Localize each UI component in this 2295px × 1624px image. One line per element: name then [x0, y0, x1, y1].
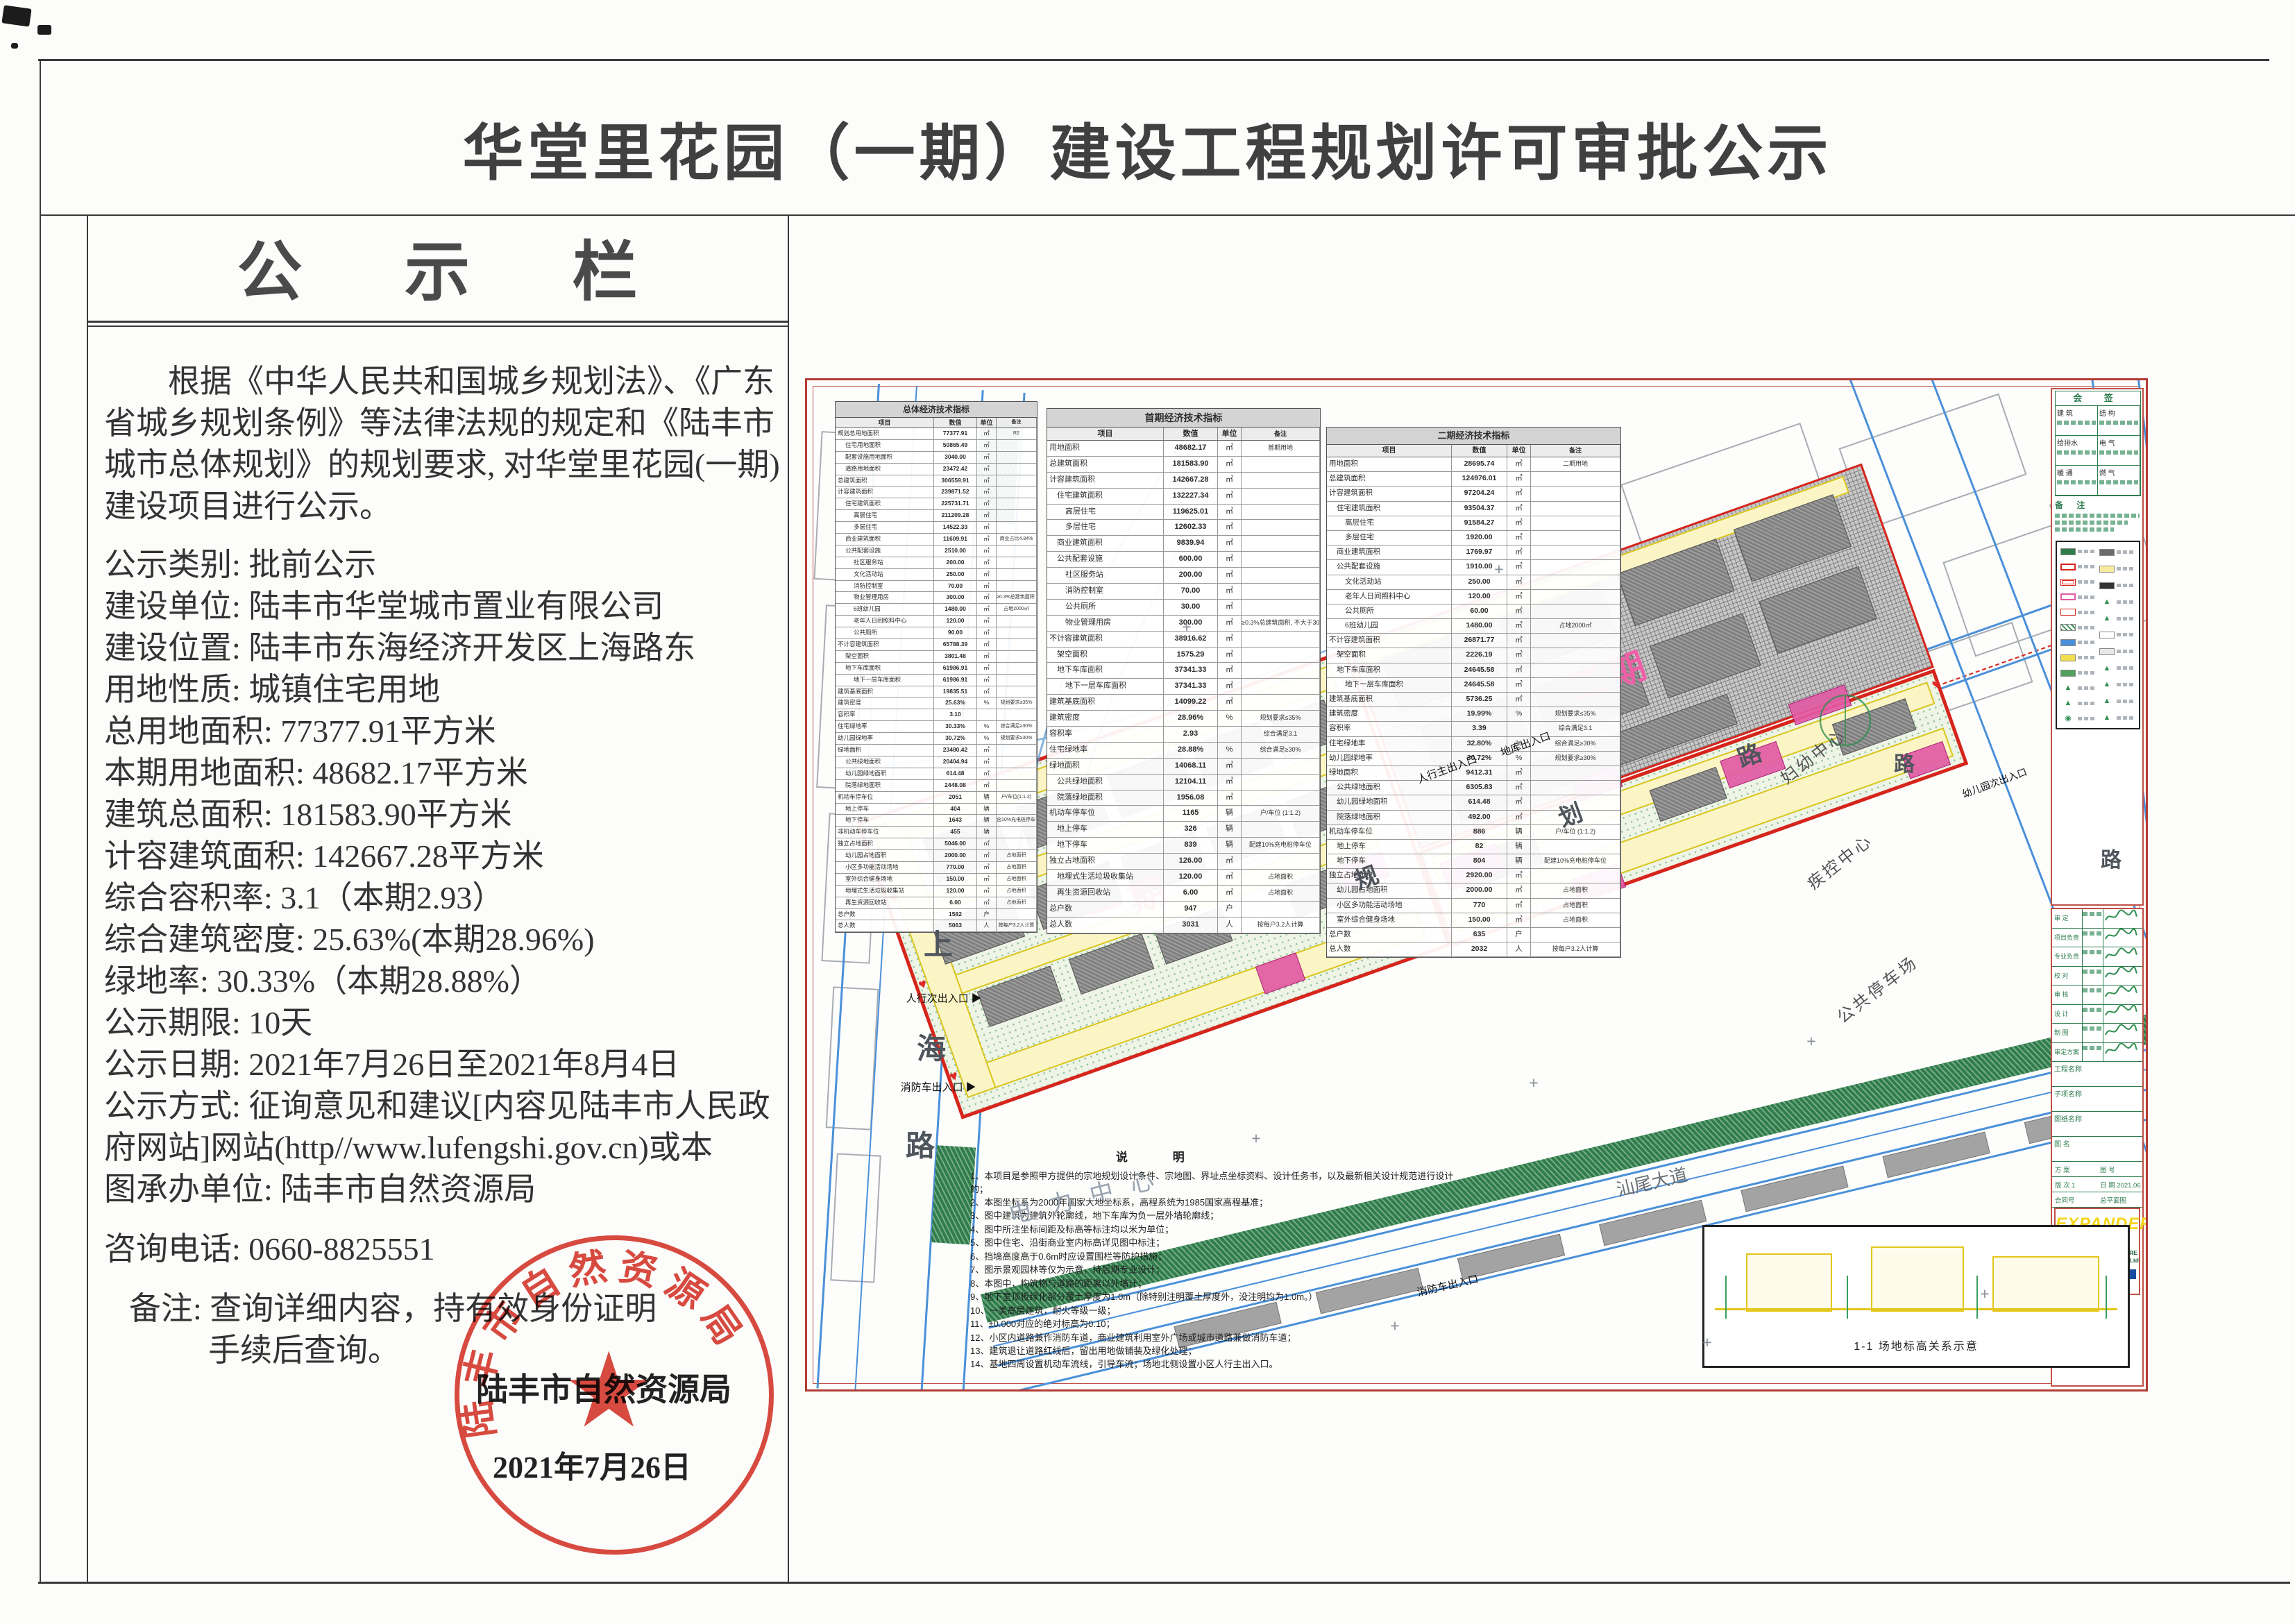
legend-label	[2117, 700, 2135, 703]
legend-item	[2060, 548, 2097, 555]
row-label: 高层住宅	[1327, 516, 1452, 530]
legend-label	[2078, 686, 2097, 690]
column-header: 项目	[836, 418, 934, 428]
row-label: 建筑密度	[1047, 711, 1164, 726]
table-row: 建筑密度28.96%%规划要求≤35%	[1047, 711, 1320, 727]
map-label: 路	[1894, 747, 1915, 777]
row-label: 社区服务站	[1047, 568, 1164, 583]
map-label: +	[1806, 1033, 1816, 1052]
signature-role: 审定方案	[2052, 1043, 2083, 1062]
row-unit: ㎡	[977, 862, 997, 873]
row-unit: ㎡	[1218, 441, 1242, 456]
section-caption: 1-1 场地标高关系示意	[1704, 1337, 2128, 1353]
row-note	[997, 838, 1037, 849]
column-header: 备注	[1242, 428, 1320, 440]
legend-label	[2078, 717, 2097, 720]
row-unit: ㎡	[1507, 678, 1531, 692]
notice-line: 建设项目进行公示。	[104, 486, 791, 527]
row-note	[1531, 928, 1620, 942]
row-note	[1531, 634, 1620, 648]
row-note	[1242, 505, 1320, 520]
row-note	[1242, 600, 1320, 615]
note-line: 8、本图中，构筑物与道路的距离以外墙计；	[970, 1278, 1456, 1290]
row-value: 1582	[934, 909, 977, 920]
row-note	[1531, 545, 1620, 559]
note-line: 6、挡墙高度高于0.6m时应设置围栏等防护措施；	[970, 1251, 1456, 1263]
table-row: 幼儿园绿地面积614.48㎡	[836, 768, 1037, 780]
table-row: 地下一层车库面积24645.58㎡	[1327, 678, 1620, 693]
row-label: 地上停车	[836, 804, 934, 815]
svg-text:陆丰市自然资源局: 陆丰市自然资源局	[456, 1246, 749, 1441]
section-tick	[1725, 1276, 1727, 1319]
legend-triangle-icon: ▲	[2099, 714, 2115, 721]
noise	[2083, 988, 2103, 992]
map-label: 海	[917, 1026, 946, 1068]
row-label: 室外综合健身场地	[836, 874, 934, 885]
legend-label	[2078, 550, 2097, 553]
row-label: 地埋式生活垃圾收集站	[1047, 870, 1164, 885]
table-row: 建筑密度19.99%%规划要求≤35%	[1327, 707, 1620, 722]
row-unit: ㎡	[977, 534, 997, 545]
row-unit: ㎡	[1218, 886, 1242, 901]
row-label: 住宅绿地率	[1047, 743, 1164, 758]
table-row: 6班幼儿园1480.00㎡占地2000㎡	[1327, 619, 1620, 634]
notice-line: 公示类别: 批前公示	[104, 544, 791, 586]
map-label: 路	[906, 1123, 935, 1165]
row-label: 公共绿地面积	[1047, 775, 1164, 790]
column-header: 数值	[1164, 428, 1218, 440]
row-label: 非机动车停车位	[836, 827, 934, 838]
row-label: 公共厕所	[1327, 604, 1452, 618]
row-value: 3801.48	[934, 651, 977, 662]
legend-label	[2078, 611, 2097, 614]
noise	[2083, 950, 2103, 954]
table-row: 住宅建筑面积225731.71㎡	[836, 498, 1037, 510]
row-unit: ㎡	[1218, 679, 1242, 694]
row-unit: ㎡	[1218, 552, 1242, 567]
legend-item: ▲	[2060, 684, 2097, 691]
row-value: 886	[1452, 825, 1507, 839]
row-note	[1242, 520, 1320, 535]
row-label: 不计容建筑面积	[836, 639, 934, 650]
row-label: 地下停车	[1327, 854, 1452, 868]
row-note: 配建10%充电桩停车位	[1531, 854, 1620, 868]
legend-ring-icon: ◉	[2060, 715, 2076, 722]
row-label: 高层住宅	[836, 510, 934, 521]
row-label: 独立占地面积	[1047, 854, 1164, 869]
note-line: 14、基地四周设置机动车流线，引导车流；场地北侧设置小区人行主出入口。	[970, 1358, 1456, 1371]
row-value: 90.00	[934, 627, 977, 638]
row-note	[997, 464, 1037, 475]
legend-swatch	[2099, 566, 2115, 573]
row-unit: ㎡	[1507, 516, 1531, 530]
table-row: 老年人日间照料中心120.00㎡	[1327, 590, 1620, 604]
row-value: 9839.94	[1164, 536, 1218, 551]
row-note: 商业占比4.84%	[997, 534, 1037, 545]
scan-artifact	[1, 5, 31, 26]
row-note	[1242, 679, 1320, 694]
table-row: 住宅用地面积50865.49㎡	[836, 440, 1037, 452]
note-line: 10、一类高层建筑，耐火等级一级；	[970, 1305, 1456, 1317]
row-unit: ㎡	[1507, 472, 1531, 486]
row-note	[997, 452, 1037, 463]
table-row: 绿地面积14068.11㎡	[1047, 759, 1320, 775]
row-note: 综合满足≥30%	[997, 721, 1037, 732]
row-label: 多层住宅	[1327, 531, 1452, 545]
table-row: 总建筑面积181583.90㎡	[1047, 457, 1320, 473]
meta-row: 版 次 1日 期 2021.06	[2052, 1177, 2142, 1192]
table-row: 高层住宅119625.01㎡	[1047, 505, 1320, 521]
row-note: 规划要求≤35%	[1242, 711, 1320, 726]
row-label: 架空面积	[1327, 648, 1452, 662]
row-unit: ㎡	[977, 452, 997, 463]
meta-cell: 方 案	[2052, 1165, 2097, 1174]
row-unit: ㎡	[1507, 781, 1531, 795]
row-label: 总建筑面积	[1047, 457, 1164, 472]
signature-mid	[2083, 909, 2103, 928]
row-unit: ㎡	[1218, 584, 1242, 599]
row-label: 院落绿地面积	[836, 780, 934, 791]
page-title: 华堂里花园（一期）建设工程规划许可审批公示	[0, 104, 2295, 192]
row-label: 总人数	[1047, 917, 1164, 933]
row-label: 再生资源回收站	[1047, 886, 1164, 901]
map-label: +	[1251, 1131, 1261, 1149]
legend-label	[2078, 595, 2097, 599]
row-value: 11609.91	[934, 534, 977, 545]
table-row: 再生资源回收站6.00㎡占地面积	[836, 897, 1037, 909]
row-unit: %	[1507, 707, 1531, 721]
row-unit: ㎡	[1507, 590, 1531, 604]
legend-label	[2078, 671, 2097, 675]
row-value: 28695.74	[1452, 457, 1507, 471]
row-value: 61986.91	[934, 663, 977, 674]
signature-scribble	[2103, 1004, 2142, 1023]
row-value: 20404.94	[934, 756, 977, 768]
row-value: 60.00	[1452, 604, 1507, 618]
row-value: 1643	[934, 815, 977, 826]
table-row: 用地面积28695.74㎡二期用地	[1327, 457, 1620, 472]
row-label: 商业建筑面积	[1047, 536, 1164, 551]
row-value: 614.48	[934, 768, 977, 779]
row-note	[1531, 516, 1620, 530]
row-note	[1531, 648, 1620, 662]
table-row: 幼儿园占地面积2000.00㎡占地面积	[836, 850, 1037, 862]
row-unit: ㎡	[1507, 457, 1531, 471]
legend-triangle-icon: ▲	[2099, 615, 2115, 622]
row-unit: ㎡	[977, 886, 997, 897]
table-row: 6班幼儿园1480.00㎡占地2000㎡	[836, 604, 1037, 616]
row-value: 19835.51	[934, 686, 977, 697]
row-label: 地埋式生活垃圾收集站	[836, 886, 934, 897]
table-overall-indicators: 总体经济技术指标项目数值单位备注规划总用地面积77377.91㎡R2住宅用地面积…	[835, 401, 1038, 933]
row-value: 250.00	[934, 569, 977, 580]
table-row: 公共绿地面积12104.11㎡	[1047, 775, 1320, 790]
row-label: 多层住宅	[1047, 520, 1164, 535]
table-row: 地上停车82辆	[1327, 840, 1620, 854]
row-note	[1242, 584, 1320, 599]
row-unit: 户	[1218, 902, 1242, 917]
row-value: 300.00	[934, 592, 977, 603]
row-note	[997, 909, 1037, 920]
map-label: +	[1702, 1335, 1712, 1353]
row-value: 200.00	[934, 557, 977, 568]
row-label: 幼儿园占地面积	[1327, 883, 1452, 897]
legend-label	[2117, 683, 2135, 686]
row-note	[997, 616, 1037, 627]
row-note	[1531, 693, 1620, 707]
legend-item	[2099, 582, 2135, 589]
meta-row: 方 案图 号	[2052, 1162, 2142, 1177]
map-label: +	[1036, 1207, 1046, 1226]
row-unit: ㎡	[1218, 536, 1242, 551]
table-row: 高层住宅91584.27㎡	[1327, 516, 1620, 531]
row-unit: %	[1218, 711, 1242, 726]
note-line: 11、±0.000对应的绝对标高为0.10；	[970, 1318, 1456, 1330]
row-label: 建筑基底面积	[1047, 695, 1164, 710]
signoff-table: 会 签 建 筑结 构给排水电 气暖 通燃 气	[2055, 391, 2141, 496]
legend-item	[2099, 632, 2135, 638]
signature-mid	[2083, 947, 2103, 966]
row-note: 占地面积	[997, 874, 1037, 885]
row-unit: ㎡	[1507, 575, 1531, 589]
row-note	[1242, 790, 1320, 806]
row-label: 住宅建筑面积	[1327, 502, 1452, 516]
row-label: 老年人日间照料中心	[1327, 590, 1452, 604]
plan-notes: 说 明 1、本项目是参照甲方提供的宗地规划设计条件、宗地图、界址点坐标资料、设计…	[970, 1149, 1456, 1372]
row-unit: ㎡	[1507, 883, 1531, 897]
row-label: 机动车停车位	[836, 792, 934, 803]
row-unit: ㎡	[977, 487, 997, 498]
legend-item	[2060, 639, 2097, 646]
public-notice-page: 华堂里花园（一期）建设工程规划许可审批公示 公 示 栏 根据《中华人民共和国城乡…	[0, 0, 2295, 1624]
signature-mid	[2083, 986, 2103, 1004]
map-label: +	[1980, 1286, 1990, 1305]
notice-line: 绿地率: 30.33%（本期28.88%）	[104, 961, 791, 1002]
row-unit: 辆	[1218, 838, 1242, 853]
legend-swatch	[2099, 549, 2115, 556]
meta-cell: 日 期 2021.06	[2097, 1180, 2142, 1190]
signature-scribble	[2103, 909, 2142, 928]
road-green-strip	[931, 1145, 976, 1244]
row-note: 规划要求≤35%	[997, 697, 1037, 709]
legend-swatch	[2060, 593, 2076, 600]
row-unit: ㎡	[977, 768, 997, 779]
row-value: 23480.42	[934, 745, 977, 756]
section-tick	[2106, 1276, 2107, 1319]
row-note	[997, 557, 1037, 568]
legend-triangle-icon: ▲	[2060, 684, 2076, 691]
table-row: 地下车库面积37341.33㎡	[1047, 663, 1320, 679]
row-note	[997, 475, 1037, 487]
titleblock-field: 工程名称	[2052, 1062, 2142, 1087]
signoff-cell: 给排水	[2056, 436, 2098, 465]
row-unit: ㎡	[977, 850, 997, 861]
row-note: 户/车位(1:1.2)	[997, 792, 1037, 803]
table-row: 地下停车839辆配建10%充电桩停车位	[1047, 838, 1320, 854]
row-value: 947	[1164, 902, 1218, 917]
row-value: 12602.33	[1164, 520, 1218, 535]
signature-row: 审定方案	[2052, 1043, 2142, 1063]
table-row: 住宅绿地率30.33%%综合满足≥30%	[836, 721, 1037, 733]
row-note	[997, 675, 1037, 686]
row-label: 老年人日间照料中心	[836, 616, 934, 627]
row-value: 3.39	[1452, 722, 1507, 736]
notice-line: 总用地面积: 77377.91平方米	[104, 711, 791, 752]
row-label: 公共厕所	[836, 627, 934, 638]
row-value: 1575.29	[1164, 648, 1218, 663]
row-note: 占地面积	[997, 897, 1037, 908]
board-header-underline2	[87, 325, 789, 327]
row-unit: ㎡	[977, 475, 997, 487]
row-value: 239871.52	[934, 487, 977, 498]
table-row: 消防控制室70.00㎡	[836, 581, 1037, 593]
legend-label	[2078, 641, 2097, 644]
legend-swatch	[2060, 624, 2076, 631]
row-value: 50865.49	[934, 440, 977, 451]
row-label: 容积率	[836, 709, 934, 720]
row-unit: 人	[1507, 942, 1531, 956]
notice-line: 府网站]网站(http//www.lufengshi.gov.cn)或本	[104, 1127, 791, 1169]
table-row: 幼儿园绿地率30.72%%规划要求≥30%	[836, 733, 1037, 745]
row-label: 不计容建筑面积	[1327, 634, 1452, 648]
legend-label	[2078, 565, 2097, 568]
legend-item	[2060, 593, 2097, 600]
row-value: 211209.28	[934, 510, 977, 521]
row-unit: ㎡	[1507, 502, 1531, 516]
table-row: 总人数3031人按每户3.2人计算	[1047, 917, 1320, 933]
row-note	[1531, 663, 1620, 677]
row-label: 总建筑面积	[836, 475, 934, 487]
row-note	[1531, 869, 1620, 883]
signature-scribble	[2103, 1024, 2142, 1042]
row-value: 48682.17	[1164, 441, 1218, 456]
row-note	[997, 639, 1037, 650]
row-unit: ㎡	[977, 897, 997, 908]
signature-role: 审 定	[2052, 909, 2083, 928]
row-value: 2226.19	[1452, 648, 1507, 662]
row-note	[1531, 531, 1620, 545]
row-label: 地下车库面积	[1327, 663, 1452, 677]
table-row: 地下车库面积61986.91㎡	[836, 663, 1037, 675]
row-label: 绿地面积	[1047, 759, 1164, 774]
table-row: 总户数635户	[1327, 928, 1620, 942]
row-note: 占地面积	[997, 850, 1037, 861]
row-note: 规划要求≥30%	[1531, 752, 1620, 766]
row-note	[1531, 766, 1620, 780]
page-bottom-border	[38, 1582, 2290, 1584]
table-row: 多层住宅1920.00㎡	[1327, 531, 1620, 545]
row-unit: ㎡	[1218, 473, 1242, 488]
table-title: 二期经济技术指标	[1327, 428, 1620, 445]
row-note	[1242, 759, 1320, 774]
row-value: 126.00	[1164, 854, 1218, 869]
table-row: 绿地面积9412.31㎡	[1327, 766, 1620, 781]
row-value: 61986.91	[934, 675, 977, 686]
row-value: 2920.00	[1452, 869, 1507, 883]
row-unit: ㎡	[977, 838, 997, 849]
notice-line: 公示方式: 征询意见和建议[内容见陆丰市人民政	[104, 1085, 791, 1127]
row-note	[997, 581, 1037, 592]
table-row: 独立占地面积5046.00㎡	[836, 838, 1037, 850]
row-note	[1242, 536, 1320, 551]
legend-item	[2060, 564, 2097, 570]
legend-label	[2117, 633, 2135, 636]
legend-item: ▲	[2099, 615, 2135, 622]
row-unit: ㎡	[977, 522, 997, 533]
row-value: 150.00	[1452, 913, 1507, 927]
row-label: 幼儿园绿地率	[836, 733, 934, 744]
row-value: 24645.58	[1452, 663, 1507, 677]
row-note: 占地面积	[1531, 883, 1620, 897]
row-note	[997, 498, 1037, 509]
row-unit: 辆	[977, 815, 997, 826]
row-note	[997, 440, 1037, 451]
row-value: 14099.22	[1164, 695, 1218, 710]
official-seal: ★ 陆丰市自然资源局	[455, 1235, 774, 1555]
table-row: 社区服务站200.00㎡	[836, 557, 1037, 569]
notice-line: 根据《中华人民共和国城乡规划法》、《广东	[104, 361, 791, 403]
row-note	[1242, 775, 1320, 790]
notice-line: 建设位置: 陆丰市东海经济开发区上海路东	[104, 627, 791, 669]
legend-label	[2078, 702, 2097, 705]
noise	[2083, 931, 2103, 936]
table-row: 公共绿地面积20404.94㎡	[836, 756, 1037, 768]
note-line: 9、地下室顶板绿化部分覆土厚度为1.0m（除特别注明覆土厚度外，没注明均为1.0…	[970, 1291, 1456, 1303]
signoff-header: 会 签	[2056, 391, 2140, 406]
row-note	[1531, 487, 1620, 500]
row-label: 公共配套设施	[1047, 552, 1164, 567]
row-value: 37341.33	[1164, 663, 1218, 678]
row-value: 5736.25	[1452, 693, 1507, 707]
row-label: 总户数	[1327, 928, 1452, 942]
row-label: 社区服务站	[836, 557, 934, 568]
row-value: 23472.42	[934, 464, 977, 475]
row-unit: %	[977, 721, 997, 732]
row-label: 地上停车	[1327, 840, 1452, 854]
table-row: 地下车库面积24645.58㎡	[1327, 663, 1620, 678]
row-value: 77377.91	[934, 428, 977, 439]
table-header-row: 项目数值单位备注	[836, 418, 1037, 428]
row-unit: ㎡	[1507, 693, 1531, 707]
legend-swatch	[2060, 609, 2076, 616]
row-value: 12104.11	[1164, 775, 1218, 790]
table-row: 再生资源回收站6.00㎡占地面积	[1047, 886, 1320, 902]
signature-rows: 审 定项目负责专业负责校 对审 核设 计制 图审定方案	[2052, 909, 2142, 1062]
row-note: 占地面积	[1531, 899, 1620, 913]
row-unit: ㎡	[977, 440, 997, 451]
row-label: 院落绿地面积	[1047, 790, 1164, 806]
row-label: 建筑密度	[1327, 707, 1452, 721]
signoff-noise	[2099, 450, 2138, 455]
scan-artifact	[37, 25, 51, 35]
table-row: 公共配套设施2510.00㎡	[836, 545, 1037, 557]
noise	[2083, 1026, 2103, 1031]
row-label: 再生资源回收站	[836, 897, 934, 908]
row-value: 614.48	[1452, 795, 1507, 809]
legend-label	[2117, 567, 2135, 570]
row-value: 28.96%	[1164, 711, 1218, 726]
row-value: 455	[934, 827, 977, 838]
table-row: 总建筑面积306559.91㎡	[836, 475, 1037, 487]
table-row: 机动车停车位2051辆户/车位(1:1.2)	[836, 792, 1037, 804]
noise	[2083, 1008, 2103, 1012]
row-value: 97204.24	[1452, 487, 1507, 500]
table-row: 商业建筑面积1769.97㎡	[1327, 545, 1620, 560]
map-label: +	[1182, 619, 1192, 638]
signature-row: 审 核	[2052, 986, 2142, 1005]
row-value: 200.00	[1164, 568, 1218, 583]
legend-label	[2117, 550, 2135, 554]
